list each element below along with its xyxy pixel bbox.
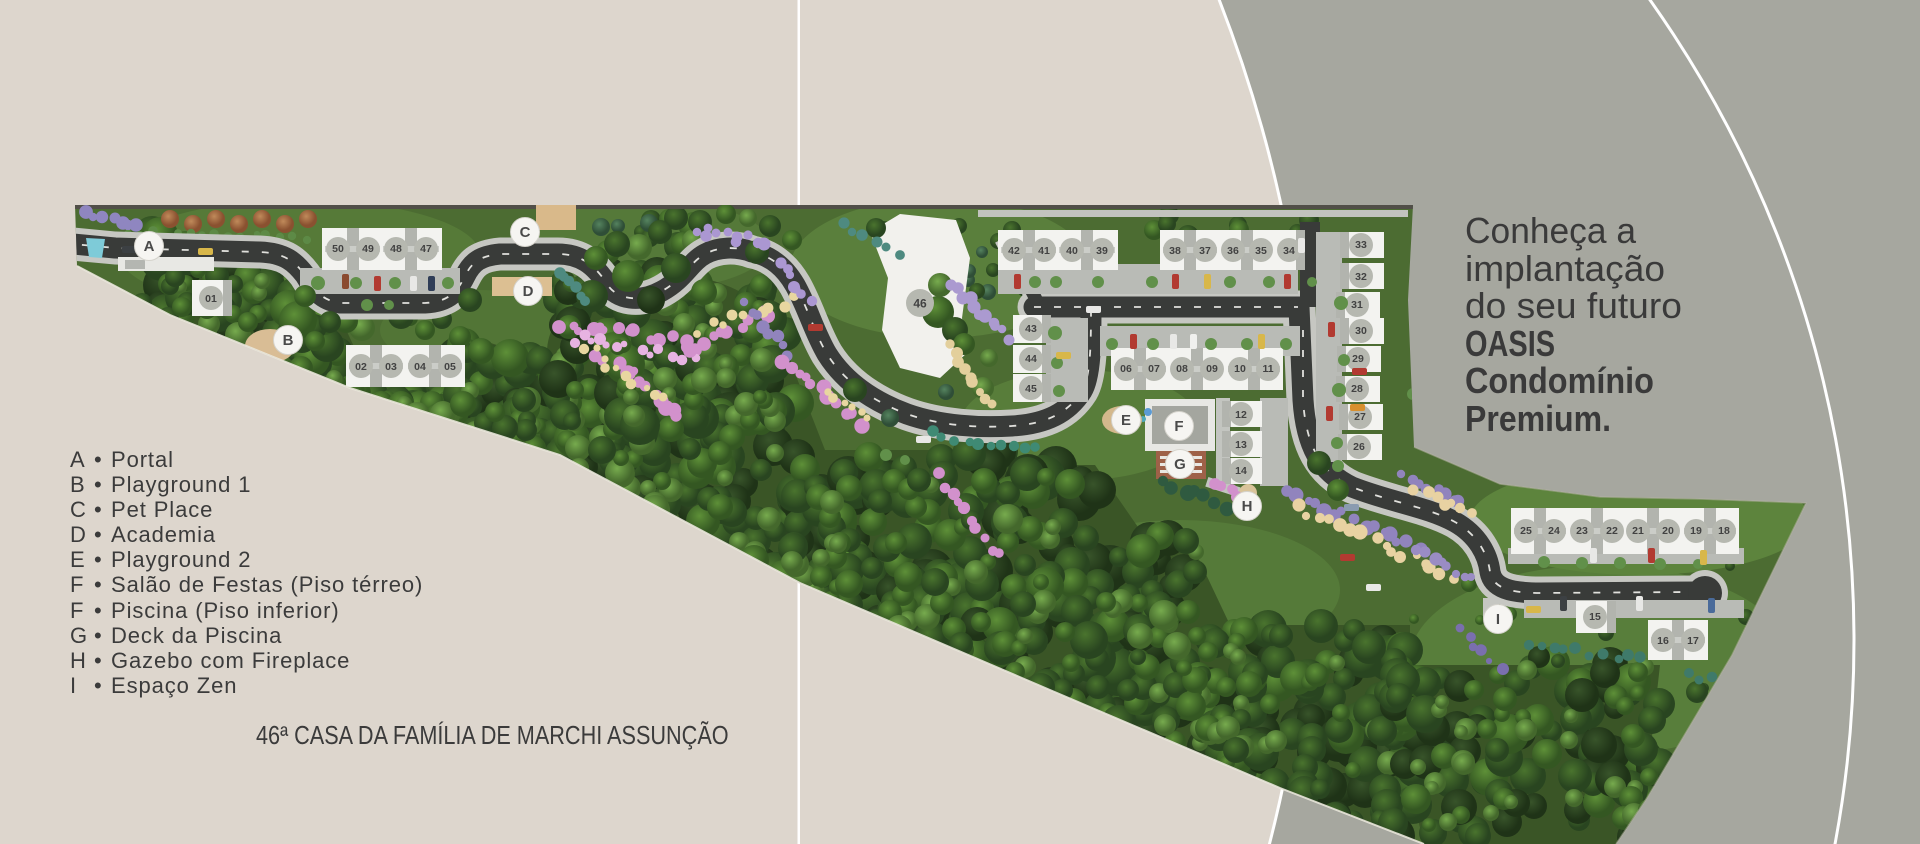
svg-text:31: 31: [1351, 299, 1363, 311]
svg-text:20: 20: [1662, 525, 1674, 537]
svg-text:13: 13: [1235, 439, 1247, 451]
svg-text:28: 28: [1351, 383, 1363, 395]
svg-text:35: 35: [1255, 245, 1267, 257]
svg-text:21: 21: [1632, 525, 1644, 537]
svg-text:14: 14: [1235, 465, 1247, 477]
svg-text:09: 09: [1206, 363, 1218, 375]
svg-text:27: 27: [1354, 411, 1366, 423]
svg-text:C: C: [520, 224, 531, 241]
svg-text:E: E: [1121, 412, 1131, 429]
svg-text:I: I: [1496, 611, 1500, 628]
svg-text:49: 49: [362, 243, 374, 255]
svg-text:08: 08: [1176, 363, 1188, 375]
svg-text:50: 50: [332, 243, 344, 255]
svg-text:18: 18: [1718, 525, 1730, 537]
svg-text:45: 45: [1025, 383, 1037, 395]
svg-text:37: 37: [1199, 245, 1211, 257]
svg-text:15: 15: [1589, 611, 1601, 623]
svg-text:24: 24: [1548, 525, 1560, 537]
svg-text:05: 05: [444, 361, 456, 373]
svg-text:07: 07: [1148, 363, 1160, 375]
svg-text:40: 40: [1066, 245, 1078, 257]
svg-text:44: 44: [1025, 353, 1037, 365]
svg-text:B: B: [283, 332, 294, 349]
svg-text:33: 33: [1355, 239, 1367, 251]
svg-text:06: 06: [1120, 363, 1132, 375]
svg-text:A: A: [144, 238, 155, 255]
svg-text:03: 03: [385, 361, 397, 373]
svg-text:43: 43: [1025, 323, 1037, 335]
svg-text:19: 19: [1690, 525, 1702, 537]
svg-text:01: 01: [205, 293, 217, 305]
svg-text:29: 29: [1352, 353, 1364, 365]
svg-text:32: 32: [1355, 271, 1367, 283]
svg-text:F: F: [1174, 418, 1183, 435]
svg-text:17: 17: [1687, 635, 1699, 647]
svg-text:30: 30: [1355, 325, 1367, 337]
svg-text:22: 22: [1606, 525, 1618, 537]
svg-text:25: 25: [1520, 525, 1532, 537]
svg-text:41: 41: [1038, 245, 1050, 257]
svg-text:D: D: [523, 283, 534, 300]
svg-text:26: 26: [1353, 441, 1365, 453]
svg-text:42: 42: [1008, 245, 1020, 257]
svg-text:39: 39: [1096, 245, 1108, 257]
svg-text:47: 47: [420, 243, 432, 255]
svg-text:46: 46: [913, 297, 927, 311]
svg-text:10: 10: [1234, 363, 1246, 375]
svg-text:34: 34: [1283, 245, 1295, 257]
svg-text:04: 04: [414, 361, 426, 373]
svg-text:38: 38: [1169, 245, 1181, 257]
svg-text:23: 23: [1576, 525, 1588, 537]
svg-text:G: G: [1174, 456, 1186, 473]
svg-text:16: 16: [1657, 635, 1669, 647]
svg-text:11: 11: [1262, 363, 1273, 375]
svg-text:02: 02: [355, 361, 367, 373]
svg-text:36: 36: [1227, 245, 1239, 257]
svg-text:48: 48: [390, 243, 402, 255]
svg-text:H: H: [1242, 498, 1253, 515]
svg-text:12: 12: [1235, 409, 1247, 421]
